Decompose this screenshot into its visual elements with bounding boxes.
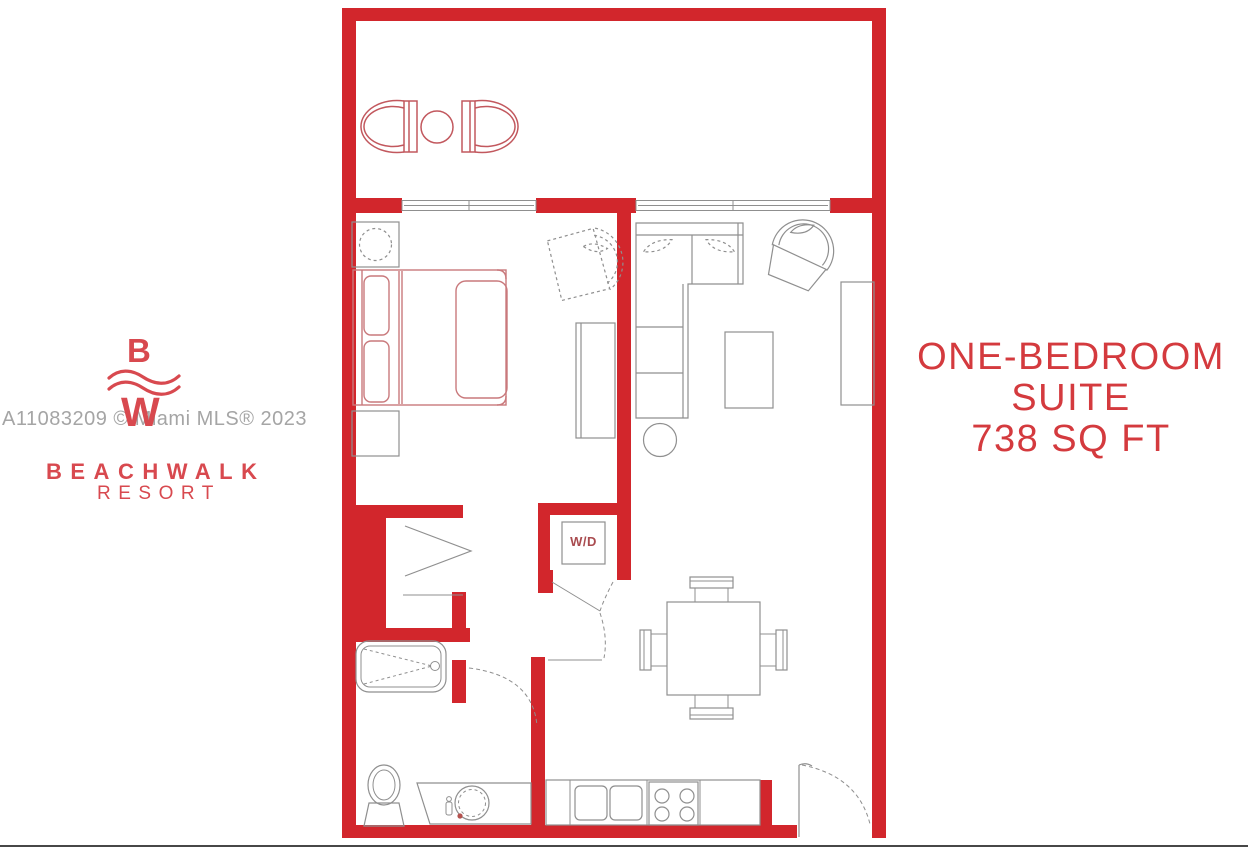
- dining-chair-bottom: [690, 695, 733, 719]
- laundry-top-wall: [538, 503, 630, 515]
- closet-bifold-doors: [405, 526, 471, 576]
- resort-subtitle: RESORT: [97, 483, 221, 505]
- dining-chair-right: [760, 630, 787, 670]
- bathtub: [356, 641, 446, 692]
- living-sliding-door: [636, 201, 830, 211]
- dining-chair-left: [640, 630, 667, 670]
- bedroom-armchair: [547, 225, 628, 301]
- bathroom-door-swing: [469, 668, 537, 726]
- bedroom-furniture: [352, 222, 627, 456]
- bottom-wall: [342, 825, 797, 838]
- bathroom-kitchen-wall: [531, 657, 545, 838]
- living-armchair: [759, 210, 843, 297]
- unit-title-line1: ONE-BEDROOM: [893, 337, 1248, 378]
- kitchen-sink: [575, 786, 642, 820]
- laundry-doors: [548, 582, 613, 660]
- logo-letter-w: W: [121, 392, 160, 433]
- nightstand-top: [352, 222, 399, 267]
- page-bottom-rule: [0, 845, 1248, 847]
- chair-cushion: [583, 242, 608, 254]
- bathroom-fixtures: [356, 641, 531, 826]
- entry-door: [799, 764, 870, 837]
- unit-title: ONE-BEDROOM SUITE 738 SQ FT: [893, 337, 1248, 460]
- dresser: [576, 323, 615, 438]
- dining-table: [667, 602, 760, 695]
- balcony-left-wall: [342, 8, 356, 213]
- laundry-left-foot: [538, 570, 553, 593]
- dining-chair-top: [690, 577, 733, 602]
- counter-end-stub: [760, 780, 772, 825]
- bed-pillow-2: [364, 341, 389, 402]
- coffee-table: [725, 332, 773, 408]
- unit-title-line3: 738 SQ FT: [893, 419, 1248, 460]
- balcony-top-wall: [342, 8, 886, 21]
- balcony-chair-left: [361, 101, 417, 153]
- bathroom-door-stub: [452, 660, 466, 703]
- round-side-table: [644, 424, 677, 457]
- walls: [342, 8, 886, 838]
- dining-set: [640, 577, 787, 719]
- vanity-sink: [417, 783, 531, 824]
- balcony-right-wall: [872, 8, 886, 213]
- kitchen: [546, 780, 760, 825]
- bedroom-living-divider-wall: [617, 198, 631, 580]
- tub-drain: [431, 662, 440, 671]
- sofa-pillow-right: [705, 239, 736, 254]
- closet-right-wall: [452, 592, 466, 632]
- sofa-pillow-left: [642, 239, 673, 254]
- structural-column: [342, 505, 386, 642]
- table-lamp: [360, 229, 392, 261]
- bathroom-top-wall: [342, 628, 470, 642]
- bed-pillow-1: [364, 276, 389, 335]
- faucet: [457, 813, 462, 818]
- bedroom-sliding-door: [402, 201, 536, 211]
- living-room-furniture: [636, 210, 874, 457]
- floorplan-page: A11083209 © Miami MLS® 2023 B W BEACHWAL…: [0, 0, 1248, 848]
- stove: [649, 782, 698, 825]
- bed-throw: [456, 281, 507, 398]
- toilet: [364, 765, 404, 826]
- resort-name: BEACHWALK: [46, 459, 266, 485]
- nightstand-bottom: [352, 411, 399, 456]
- soap-bottle: [447, 797, 452, 802]
- chair-cushion: [790, 223, 815, 234]
- balcony-furniture: [361, 101, 518, 153]
- unit-title-line2: SUITE: [893, 378, 1248, 419]
- balcony-table: [421, 111, 453, 143]
- closet-and-doors: [403, 522, 870, 837]
- bed: [353, 270, 507, 405]
- balcony-chair-right: [462, 101, 518, 153]
- logo-letter-b: B: [127, 334, 151, 367]
- washer-dryer-label: W/D: [562, 534, 605, 549]
- tv-console: [841, 282, 874, 405]
- sectional-sofa: [636, 223, 743, 418]
